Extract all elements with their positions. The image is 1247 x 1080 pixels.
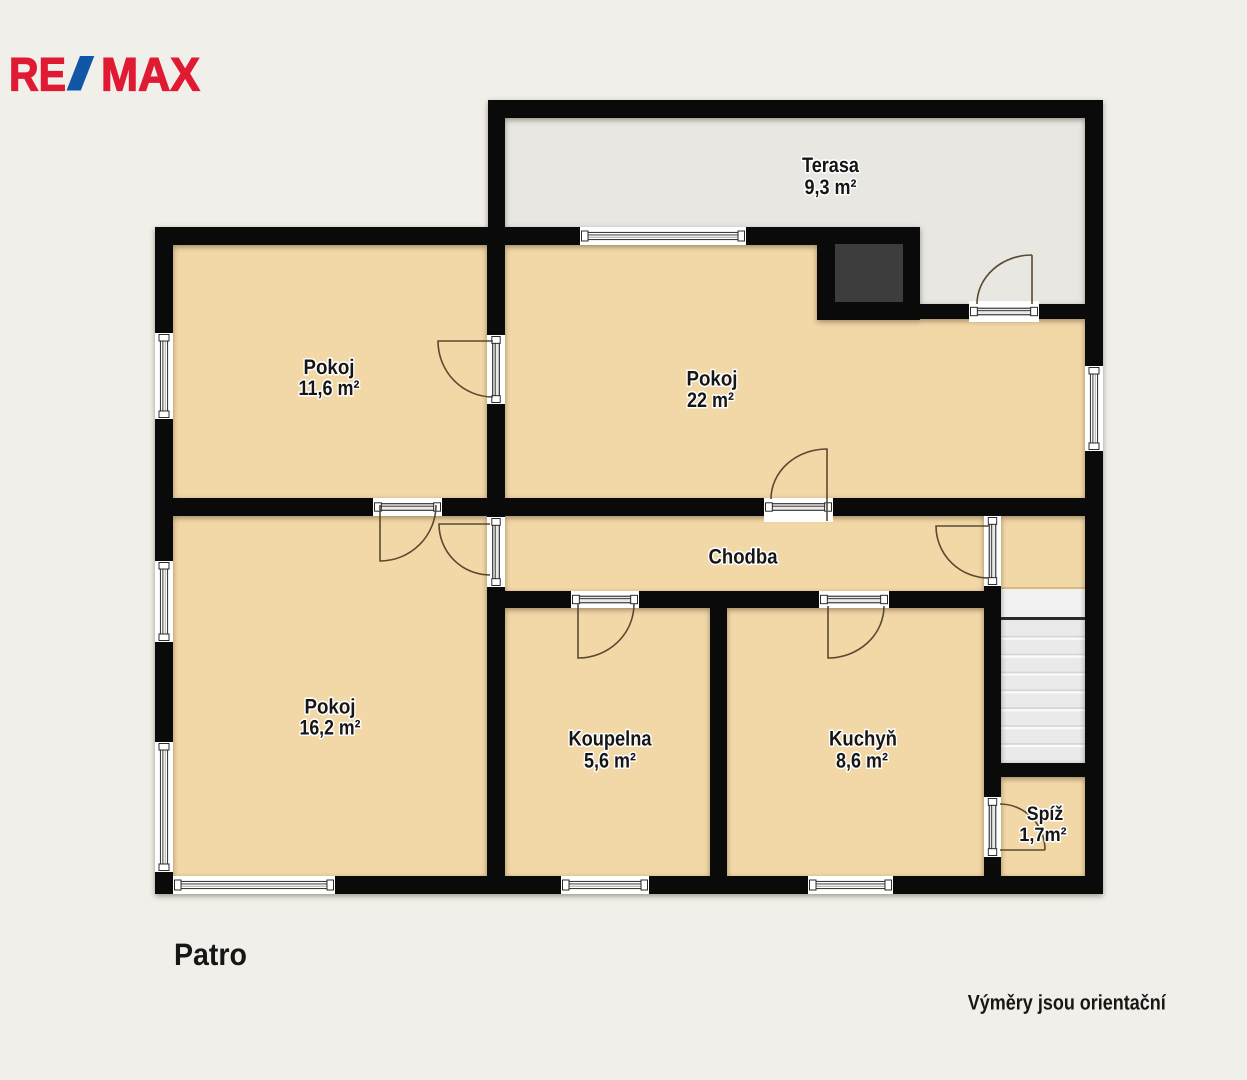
svg-text:Pokoj: Pokoj bbox=[305, 696, 356, 719]
svg-text:22 m²: 22 m² bbox=[687, 389, 734, 412]
svg-text:1,7m²: 1,7m² bbox=[1019, 824, 1067, 846]
svg-text:Kuchyň: Kuchyň bbox=[829, 728, 897, 751]
svg-text:Výměry jsou orientační: Výměry jsou orientační bbox=[968, 992, 1167, 1015]
svg-text:MAX: MAX bbox=[101, 48, 200, 101]
svg-text:9,3 m²: 9,3 m² bbox=[805, 176, 857, 199]
svg-text:RE: RE bbox=[9, 48, 66, 101]
svg-text:16,2 m²: 16,2 m² bbox=[300, 717, 361, 740]
svg-text:Chodba: Chodba bbox=[709, 546, 778, 569]
svg-text:8,6 m²: 8,6 m² bbox=[836, 750, 888, 773]
svg-text:Pokoj: Pokoj bbox=[304, 356, 355, 379]
svg-text:Spíž: Spíž bbox=[1027, 803, 1064, 825]
svg-text:5,6 m²: 5,6 m² bbox=[584, 750, 636, 773]
svg-text:Patro: Patro bbox=[174, 937, 247, 972]
svg-text:Koupelna: Koupelna bbox=[569, 728, 652, 751]
svg-text:Pokoj: Pokoj bbox=[687, 368, 738, 391]
svg-text:11,6 m²: 11,6 m² bbox=[299, 377, 360, 400]
svg-text:Terasa: Terasa bbox=[802, 154, 859, 177]
